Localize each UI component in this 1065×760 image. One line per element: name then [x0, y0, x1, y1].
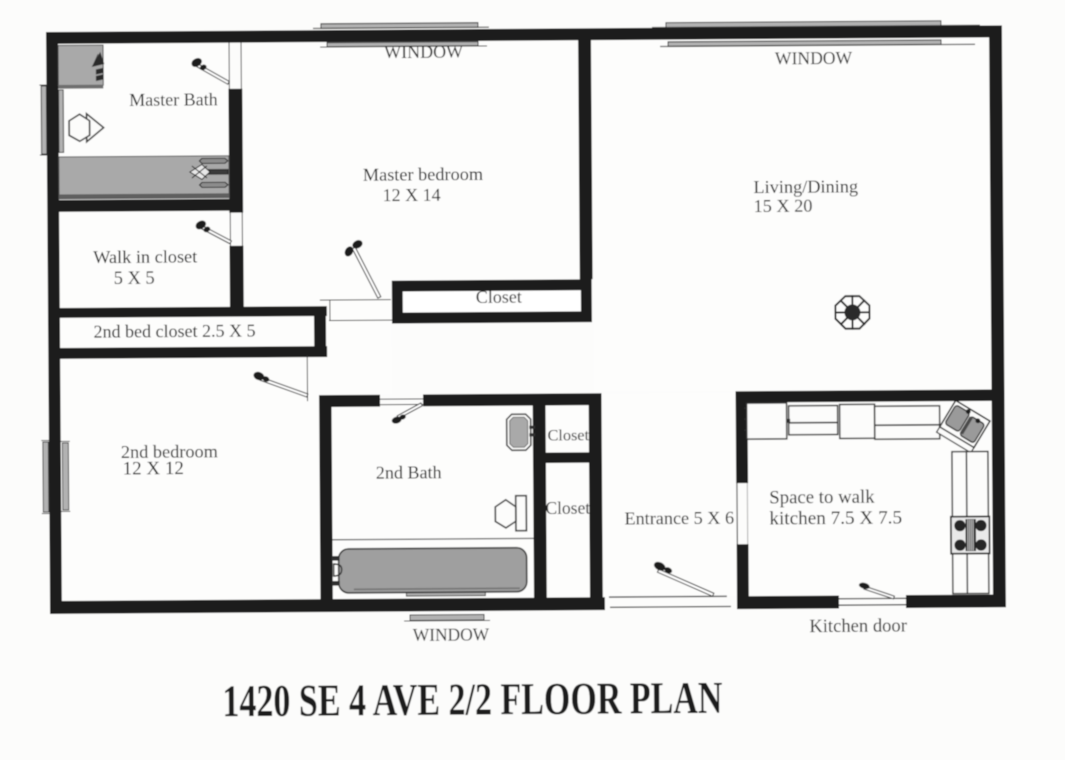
svg-text:Walk in closet: Walk in closet	[93, 246, 197, 267]
svg-text:5 X 5: 5 X 5	[114, 269, 155, 289]
svg-text:Master Bath: Master Bath	[129, 89, 218, 110]
svg-text:2nd Bath: 2nd Bath	[376, 462, 442, 482]
svg-text:WINDOW: WINDOW	[384, 41, 463, 62]
svg-text:Kitchen door: Kitchen door	[809, 615, 908, 637]
svg-text:Space to walk: Space to walk	[769, 487, 875, 509]
svg-text:WINDOW: WINDOW	[775, 48, 853, 69]
svg-text:2nd bed closet 2.5 X 5: 2nd bed closet 2.5 X 5	[93, 321, 255, 342]
svg-text:Closet: Closet	[547, 425, 589, 444]
svg-text:Closet: Closet	[545, 498, 590, 518]
svg-text:Closet: Closet	[476, 287, 522, 307]
svg-text:WINDOW: WINDOW	[413, 624, 490, 645]
svg-text:Living/Dining: Living/Dining	[753, 176, 858, 197]
svg-text:kitchen 7.5 X 7.5: kitchen 7.5 X 7.5	[769, 507, 902, 529]
svg-text:1420 SE 4 AVE 2/2 FLOOR PLAN: 1420 SE 4 AVE 2/2 FLOOR PLAN	[222, 672, 722, 726]
svg-text:12 X 12: 12 X 12	[123, 458, 184, 479]
svg-text:Entrance 5 X 6: Entrance 5 X 6	[624, 508, 734, 529]
svg-text:12 X 14: 12 X 14	[383, 185, 441, 205]
svg-text:Master bedroom: Master bedroom	[363, 164, 483, 185]
svg-text:15 X 20: 15 X 20	[754, 196, 813, 216]
